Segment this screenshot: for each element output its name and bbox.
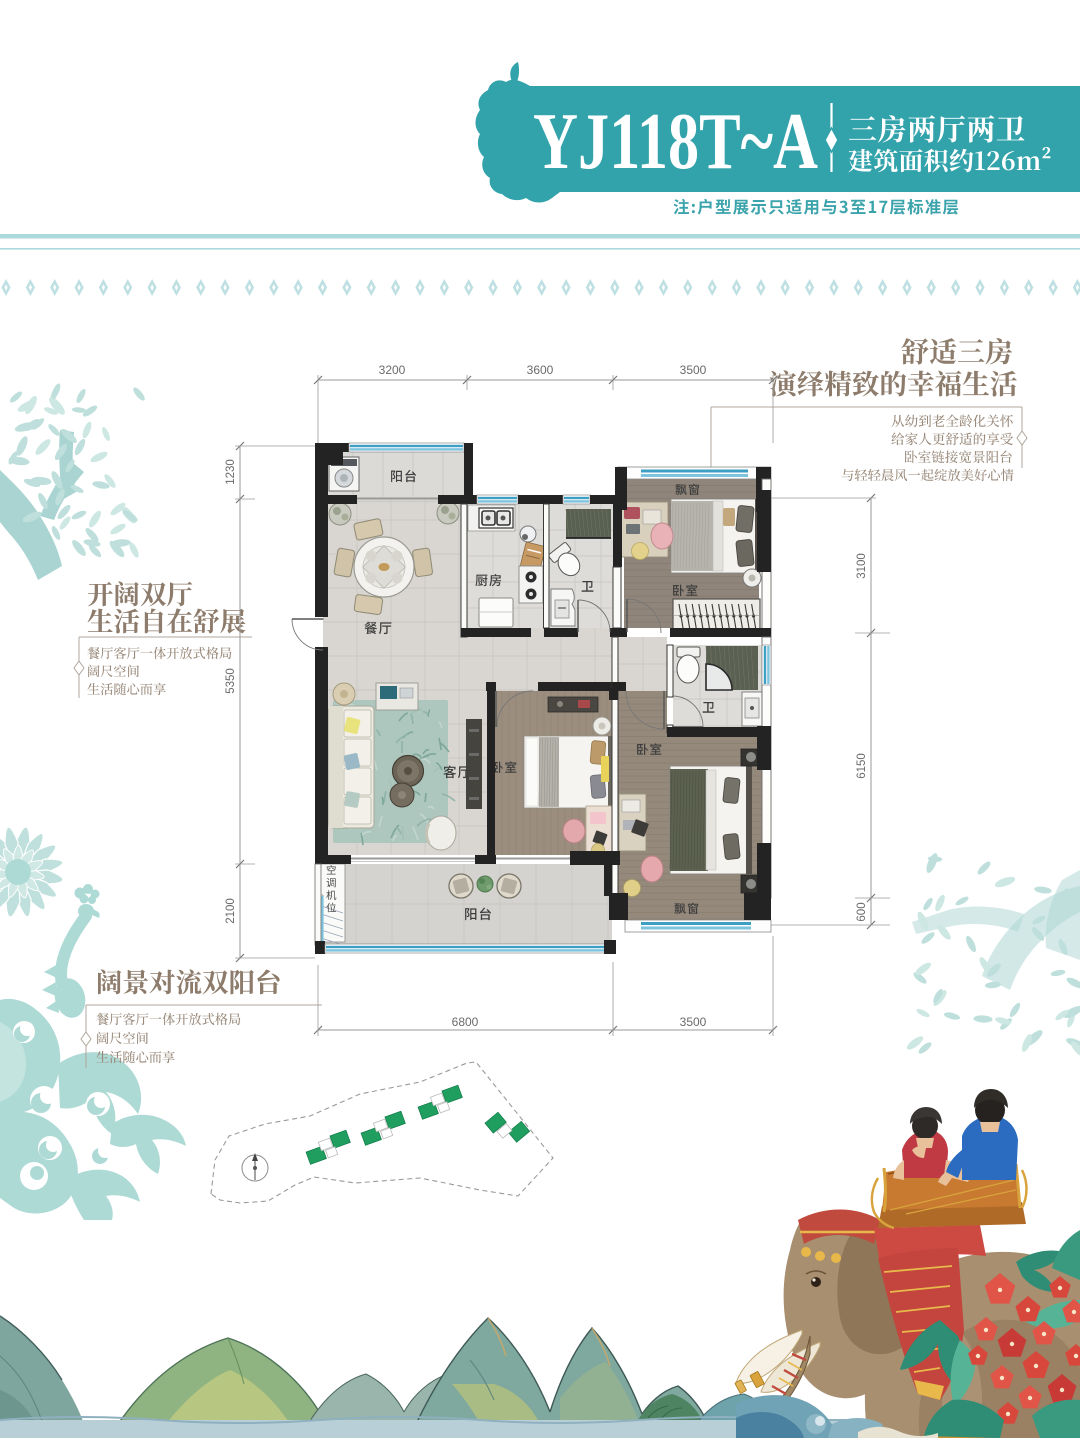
svg-text:3600: 3600	[527, 363, 554, 377]
svg-text:6800: 6800	[452, 1015, 479, 1029]
svg-text:6150: 6150	[856, 753, 868, 779]
svg-text:3500: 3500	[680, 1015, 707, 1029]
svg-text:600: 600	[856, 902, 868, 921]
svg-text:3100: 3100	[856, 553, 868, 579]
svg-text:5350: 5350	[225, 668, 237, 694]
svg-text:3200: 3200	[379, 363, 406, 377]
svg-text:YJ118T~A: YJ118T~A	[533, 98, 818, 186]
svg-text:2100: 2100	[225, 898, 237, 924]
svg-text:1230: 1230	[225, 459, 237, 485]
svg-text:3500: 3500	[680, 363, 707, 377]
